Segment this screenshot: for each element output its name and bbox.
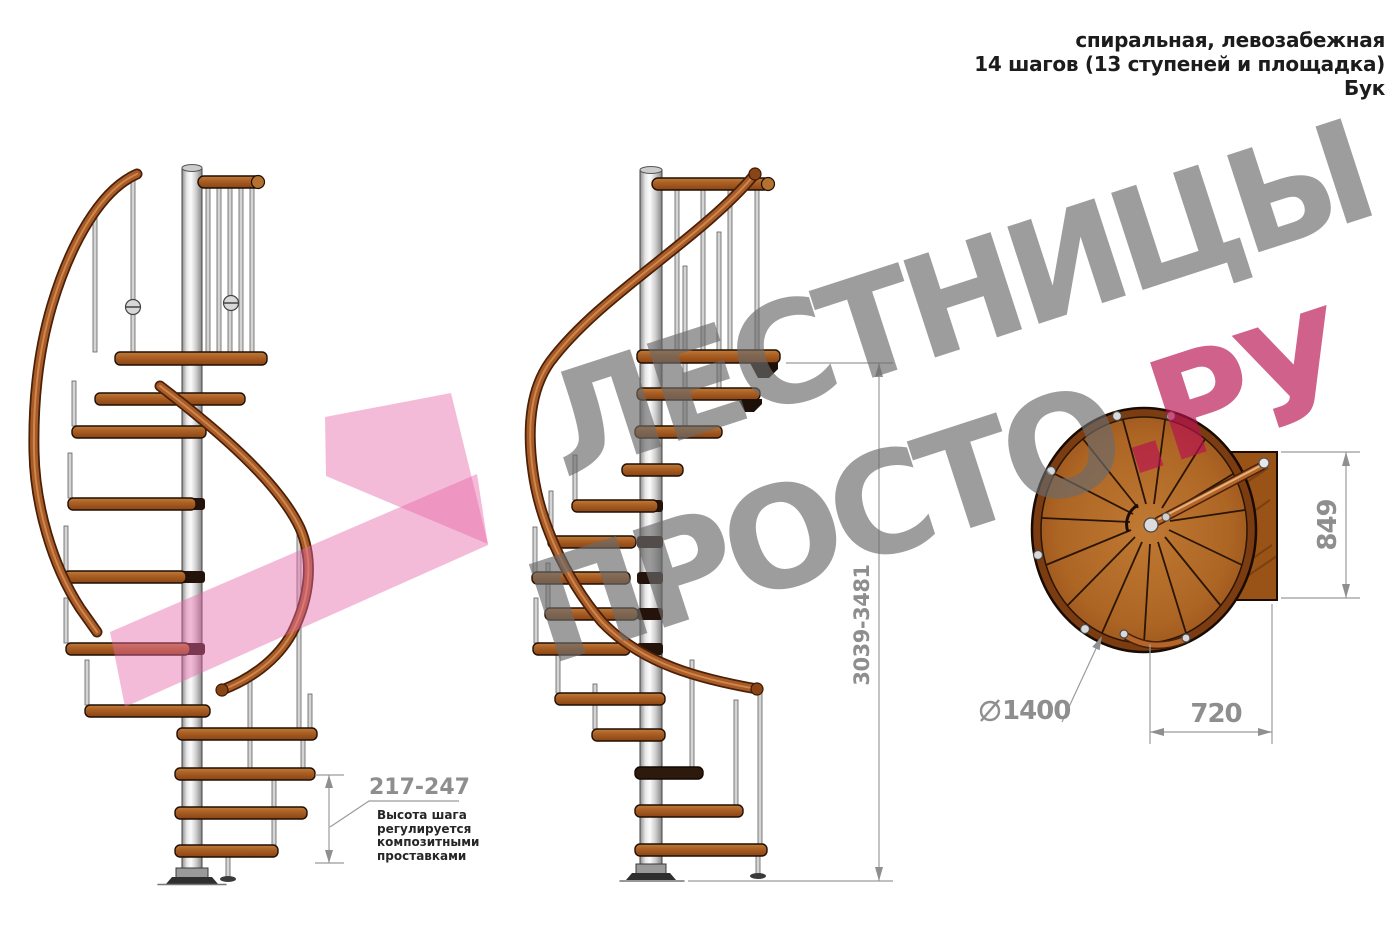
drawing-page: ЛЕСТНИЦЫ ПРОСТО.РУ спиральная, левозабеж…	[0, 0, 1400, 937]
pole-cap	[182, 165, 202, 172]
diameter-icon	[981, 700, 999, 721]
pole-cap	[640, 167, 662, 174]
title-line-type: спиральная, левозабежная	[974, 28, 1385, 52]
top-platform	[637, 350, 780, 363]
top-plan-view	[1032, 408, 1277, 652]
diameter-label: 1400	[1002, 696, 1070, 726]
platform-depth-label: 849	[1313, 485, 1343, 565]
baluster-foot	[750, 873, 766, 879]
rail-end-cap	[252, 176, 265, 189]
base-flange	[626, 873, 676, 880]
baluster-foot	[220, 876, 236, 882]
platform-hook	[750, 363, 778, 378]
step-height-label: 217-247	[369, 775, 470, 800]
title-block: спиральная, левозабежная 14 шагов (13 ст…	[974, 28, 1385, 100]
staircase-drawing	[0, 0, 1400, 937]
title-line-material: Бук	[974, 76, 1385, 100]
rod-collar	[1162, 513, 1170, 521]
left-side-view	[34, 165, 317, 885]
rod-end-cap	[1259, 458, 1269, 468]
step-hook	[738, 399, 762, 412]
step-height-note: Высота шага регулируется композитными пр…	[377, 809, 479, 863]
hub-ball	[1144, 518, 1158, 532]
title-line-steps: 14 шагов (13 ступеней и площадка)	[974, 52, 1385, 76]
base-flange	[166, 877, 218, 884]
step-dark	[635, 767, 703, 779]
platform-width-label: 720	[1176, 699, 1256, 729]
total-height-label: 3039-3481	[850, 540, 874, 710]
top-platform	[115, 352, 267, 365]
front-side-view	[530, 167, 780, 882]
rail-end-cap	[762, 178, 775, 191]
stair-circle-treads	[1041, 417, 1247, 643]
